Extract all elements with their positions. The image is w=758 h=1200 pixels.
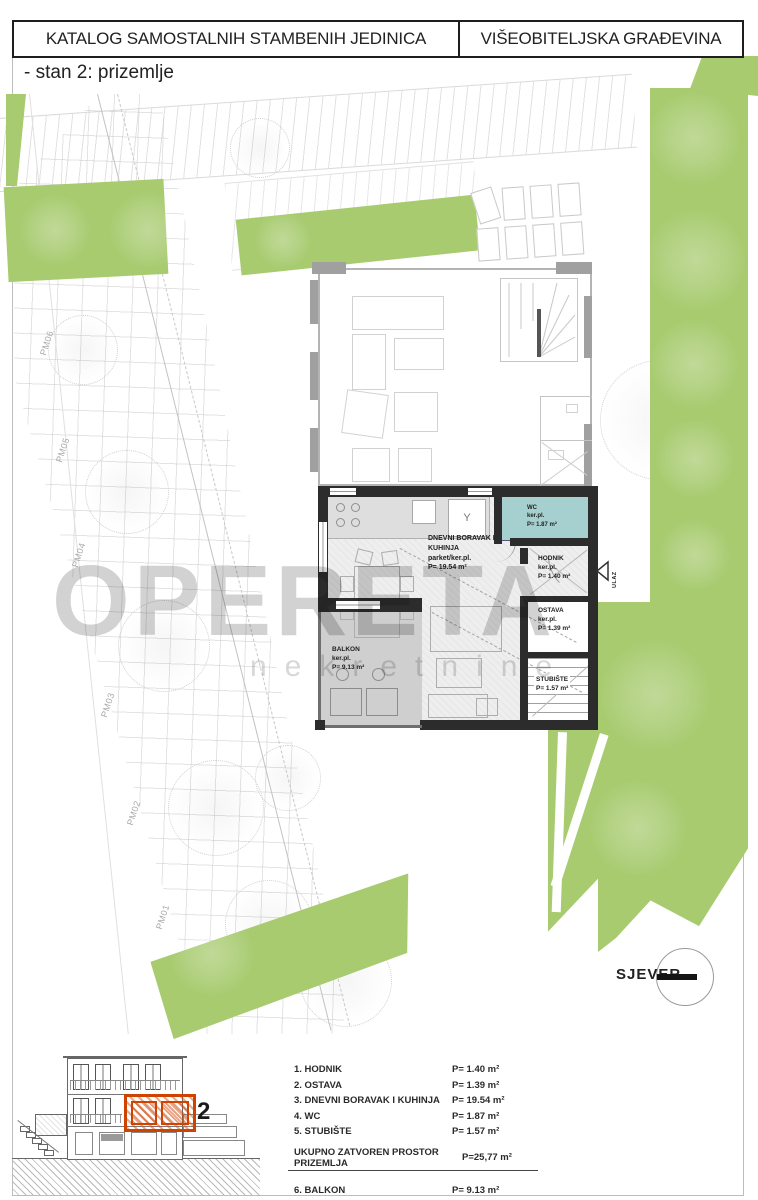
chair-outline	[340, 576, 354, 592]
window	[330, 488, 356, 495]
room-name: BALKON	[332, 645, 364, 654]
legend-row: 4. WC P= 1.87 m²	[294, 1109, 534, 1125]
tree-icon	[650, 320, 738, 408]
ostava-label: OSTAVA ker.pl. P= 1.39 m²	[538, 606, 570, 633]
balcony-door	[336, 601, 380, 609]
balcony-furniture	[330, 688, 362, 716]
stair-step	[44, 1150, 54, 1156]
legend-divider	[288, 1170, 538, 1171]
signage-strip	[101, 1134, 123, 1141]
wall-right	[588, 486, 598, 730]
wall-bottom	[420, 720, 598, 730]
legend-area: P= 1.39 m²	[452, 1080, 499, 1091]
wc-label: WC ker.pl. P= 1.87 m²	[527, 504, 557, 529]
balcony-railing	[70, 1114, 122, 1123]
partition-line	[540, 396, 541, 486]
wall-segment	[310, 352, 318, 400]
legend-area: P= 1.57 m²	[452, 1126, 499, 1137]
sofa-outline	[436, 658, 482, 688]
room-floor-finish: ker.pl.	[538, 615, 570, 624]
ground-floor-opening	[161, 1132, 177, 1155]
partition-line	[540, 440, 592, 441]
legend-room: 4. WC	[294, 1111, 452, 1122]
room-name: DNEVNI BORAVAK I	[428, 534, 495, 544]
wall-top	[318, 486, 598, 497]
wall-segment	[584, 424, 592, 486]
wall-segment	[310, 280, 318, 324]
legend-room: 5. STUBIŠTE	[294, 1126, 452, 1137]
legend-area: P= 1.87 m²	[452, 1111, 499, 1122]
window	[319, 522, 327, 572]
tree-icon	[646, 210, 746, 310]
room-floor-finish: parket/ker.pl.	[428, 554, 495, 564]
tree-sketch-icon	[85, 450, 169, 534]
tree-sketch-icon	[118, 600, 210, 692]
sofa-outline	[430, 606, 502, 652]
legend-row: 3. DNEVNI BORAVAK I KUHINJA P= 19.54 m²	[294, 1093, 534, 1109]
room-name: STUBIŠTE	[536, 675, 568, 684]
sink-symbol: Y	[448, 499, 486, 537]
wall-segment	[556, 262, 592, 274]
fixture-outline	[566, 404, 578, 413]
table-outline	[502, 186, 526, 220]
elevation-annex	[35, 1114, 67, 1136]
stove-burners	[336, 503, 362, 529]
wall-segment	[310, 428, 318, 472]
table-outline	[557, 182, 581, 216]
tree-icon	[170, 912, 254, 996]
wall-wc-left	[494, 486, 502, 544]
furniture-outline	[394, 338, 444, 370]
tree-icon	[648, 92, 740, 184]
tree-icon	[110, 192, 186, 268]
wall-segment	[584, 296, 592, 358]
tree-icon	[590, 780, 686, 876]
area-legend: 1. HODNIK P= 1.40 m² 2. OSTAVA P= 1.39 m…	[294, 1062, 534, 1199]
wall-segment	[312, 262, 346, 274]
stair-fan	[501, 279, 577, 361]
balcony-edge	[318, 612, 321, 728]
north-pointer-icon	[657, 974, 697, 980]
fixture-outline	[548, 450, 564, 460]
wall-wc-bottom	[510, 538, 598, 546]
legend-row: 2. OSTAVA P= 1.39 m²	[294, 1078, 534, 1094]
tree-sketch-icon	[230, 118, 290, 178]
tree-icon	[600, 640, 710, 750]
table-outline	[532, 223, 556, 257]
legend-room: 2. OSTAVA	[294, 1080, 452, 1091]
legend-room: 6. BALKON	[294, 1185, 452, 1196]
hodnik-label: HODNIK ker.pl. P= 1.40 m²	[538, 554, 570, 581]
balcony-chair	[372, 668, 385, 681]
partition-line	[540, 396, 592, 397]
furniture-outline	[341, 389, 389, 438]
room-floor-finish: ker.pl.	[332, 654, 364, 663]
burner-icon	[336, 518, 345, 527]
legend-area: P= 19.54 m²	[452, 1095, 505, 1106]
room-area: P= 1.39 m²	[538, 624, 570, 633]
balcony-railing	[70, 1080, 180, 1090]
table-outline	[476, 698, 498, 716]
furniture-outline	[352, 448, 390, 482]
tree-icon	[20, 195, 90, 265]
floor-subtitle: - stan 2: prizemlje	[24, 62, 174, 84]
furniture-outline	[394, 392, 438, 432]
tree-icon	[660, 520, 730, 590]
burner-icon	[351, 518, 360, 527]
ground-floor-opening	[75, 1132, 93, 1155]
elevation-ground-hatch	[12, 1158, 260, 1196]
burner-icon	[351, 503, 360, 512]
room-area: P= 1.57 m²	[536, 684, 568, 693]
title-block: KATALOG SAMOSTALNIH STAMBENIH JEDINICA V…	[12, 20, 744, 58]
legend-area: P= 9.13 m²	[452, 1185, 499, 1196]
legend-balkon-row: 6. BALKON P= 9.13 m²	[294, 1183, 534, 1199]
legend-total-row: UKUPNO ZATVOREN PROSTOR PRIZEMLJA P=25,7…	[294, 1150, 534, 1166]
room-area: P= 1.87 m²	[527, 521, 557, 529]
burner-icon	[336, 503, 345, 512]
balcony-corner	[315, 720, 325, 730]
furniture-outline	[398, 448, 432, 482]
tree-sketch-icon	[168, 760, 264, 856]
room-name: HODNIK	[538, 554, 570, 563]
furniture-outline	[352, 334, 386, 390]
ground-floor-opening	[131, 1132, 157, 1155]
tree-icon	[255, 212, 311, 268]
terrace-step	[183, 1140, 245, 1156]
table-outline	[476, 227, 500, 261]
kitchen-appliance	[412, 500, 436, 524]
room-area: P= 1.40 m²	[538, 572, 570, 581]
legend-row: 1. HODNIK P= 1.40 m²	[294, 1062, 534, 1078]
room-floor-finish: ker.pl.	[538, 563, 570, 572]
chair-outline	[400, 576, 414, 592]
stubiste-label: STUBIŠTE P= 1.57 m²	[534, 674, 570, 694]
unit-number: 2	[197, 1098, 210, 1126]
balcony-furniture	[366, 688, 398, 716]
terrace-tables	[474, 182, 585, 261]
unit-highlight-inner	[161, 1101, 189, 1125]
table-outline	[529, 184, 553, 218]
neighbour-stairwell	[500, 278, 578, 362]
living-room-label: DNEVNI BORAVAK I KUHINJA parket/ker.pl. …	[428, 534, 495, 573]
entrance-label: ULAZ	[612, 571, 618, 588]
legend-room: 3. DNEVNI BORAVAK I KUHINJA	[294, 1095, 452, 1106]
catalog-sheet: KATALOG SAMOSTALNIH STAMBENIH JEDINICA V…	[0, 0, 758, 1200]
wall-ostava-top	[528, 596, 588, 602]
room-floor-finish: ker.pl.	[527, 512, 557, 520]
room-area: P= 9.13 m²	[332, 663, 364, 672]
room-name: WC	[527, 504, 557, 512]
table-outline	[560, 221, 584, 255]
building-title: VIŠEOBITELJSKA GRAĐEVINA	[460, 22, 742, 56]
room-area: P= 19.54 m²	[428, 563, 495, 573]
legend-row: 5. STUBIŠTE P= 1.57 m²	[294, 1124, 534, 1140]
unit-highlight-inner	[131, 1101, 157, 1125]
table-outline	[470, 186, 501, 224]
legend-room: 1. HODNIK	[294, 1064, 452, 1075]
wall-ostava-bottom	[528, 652, 588, 658]
balkon-label: BALKON ker.pl. P= 9.13 m²	[332, 645, 364, 672]
legend-area: P= 1.40 m²	[452, 1064, 499, 1075]
chair-outline	[381, 550, 399, 566]
room-name: OSTAVA	[538, 606, 570, 615]
window	[468, 488, 492, 495]
legend-total-area: P=25,77 m²	[462, 1152, 512, 1163]
room-name: KUHINJA	[428, 544, 495, 554]
wall-interior	[520, 596, 528, 722]
table-outline	[504, 225, 528, 259]
legend-total-label: UKUPNO ZATVOREN PROSTOR PRIZEMLJA	[294, 1147, 462, 1169]
tree-icon	[656, 420, 734, 498]
furniture-outline	[352, 296, 444, 330]
catalog-title: KATALOG SAMOSTALNIH STAMBENIH JEDINICA	[14, 22, 460, 56]
balcony-edge	[318, 725, 422, 728]
wall-stub	[520, 548, 528, 564]
entrance-arrow-icon	[594, 560, 610, 587]
